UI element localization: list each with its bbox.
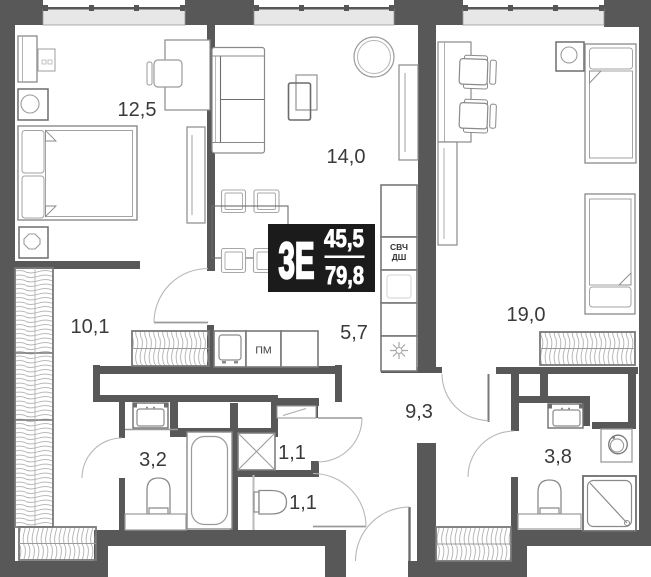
svg-text:СВЧ: СВЧ — [390, 242, 408, 252]
svg-text:79,8: 79,8 — [325, 262, 364, 290]
svg-text:3Е: 3Е — [279, 232, 315, 289]
svg-text:1,1: 1,1 — [289, 492, 317, 514]
svg-text:9,3: 9,3 — [405, 401, 433, 423]
svg-text:ДШ: ДШ — [392, 252, 407, 262]
svg-text:3,8: 3,8 — [544, 446, 572, 468]
svg-text:12,5: 12,5 — [118, 99, 157, 121]
svg-text:19,0: 19,0 — [507, 304, 546, 326]
svg-text:14,0: 14,0 — [327, 146, 366, 168]
svg-text:1,1: 1,1 — [278, 442, 306, 464]
svg-text:ПМ: ПМ — [255, 345, 271, 357]
svg-text:10,1: 10,1 — [71, 316, 110, 338]
svg-text:5,7: 5,7 — [340, 322, 368, 344]
svg-text:45,5: 45,5 — [324, 225, 364, 253]
svg-text:3,2: 3,2 — [139, 449, 167, 471]
